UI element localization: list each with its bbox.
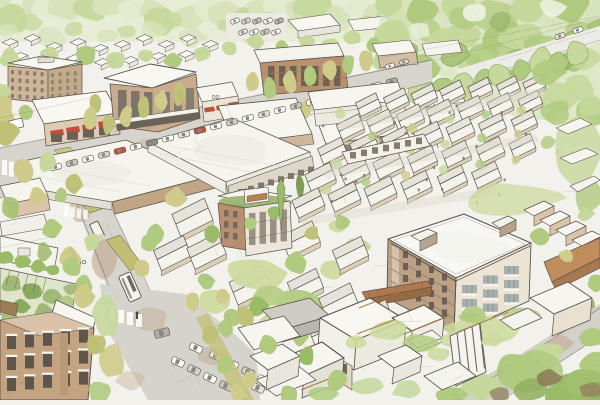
svg-text:DQ.: DQ. (212, 95, 221, 101)
